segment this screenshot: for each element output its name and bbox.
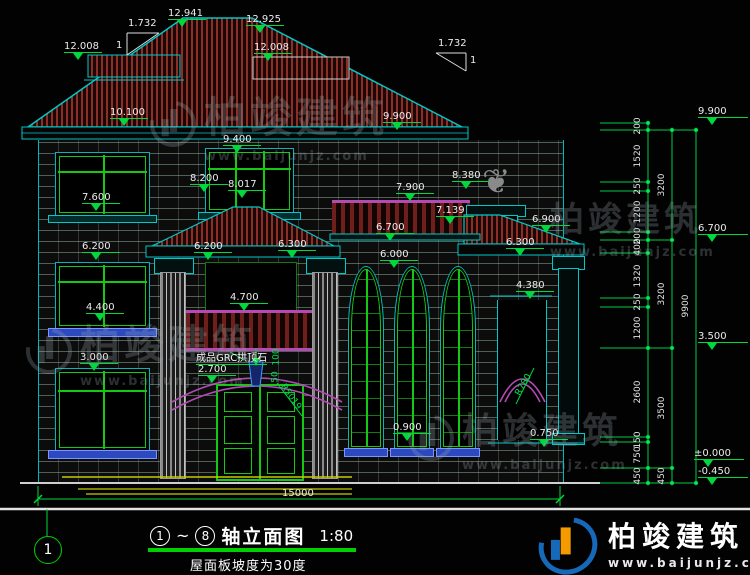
company-logo: 柏竣建筑 www.baijunjz.com bbox=[538, 518, 750, 574]
overall-width-dim: 15000 bbox=[282, 488, 314, 499]
dim-seg: 750 bbox=[633, 446, 643, 463]
elevation-label: 8.200 bbox=[190, 173, 232, 197]
elevation-label: 6.300 bbox=[278, 239, 320, 263]
title-scale: 1:80 bbox=[319, 527, 353, 545]
right-wing-lines bbox=[488, 296, 584, 443]
elevation-label: 6.200 bbox=[194, 241, 236, 265]
elevation-label: 6.700 bbox=[376, 222, 418, 246]
roof-slope-note: 屋面板坡度为30度 bbox=[190, 555, 307, 574]
elevation-label: 6.300 bbox=[506, 237, 548, 261]
keystone-height-dim: 50 bbox=[271, 371, 281, 382]
cad-elevation-sheet: ❦ 12.941 12.925 12.008 12.008 10.100 9.9… bbox=[0, 0, 750, 575]
dim-subtotal: 3200 bbox=[657, 283, 667, 306]
dim-subtotal: 3200 bbox=[657, 174, 667, 197]
level-flag: 9.900 bbox=[698, 106, 740, 130]
elevation-label: 12.008 bbox=[64, 41, 106, 65]
elevation-label: 10.100 bbox=[110, 107, 152, 131]
elevation-label: 9.900 bbox=[383, 111, 425, 135]
dim-seg: 250 bbox=[633, 293, 643, 310]
drawing-linework bbox=[0, 0, 750, 575]
elevation-label: 7.900 bbox=[396, 182, 438, 206]
elevation-label: 6.200 bbox=[82, 241, 124, 265]
elevation-label: 9.400 bbox=[223, 134, 265, 158]
elevation-label: 12.925 bbox=[246, 14, 288, 38]
elevation-label: 8.017 bbox=[228, 179, 270, 203]
elevation-label: 7.600 bbox=[82, 192, 124, 216]
elevation-label: 7.139 bbox=[436, 205, 478, 229]
elevation-label: 2.700 bbox=[198, 364, 240, 388]
elevation-label: 0.900 bbox=[393, 422, 435, 446]
axis-end-circle: 8 bbox=[195, 526, 215, 546]
dim-seg: 1320 bbox=[633, 265, 643, 288]
elevation-label: 12.941 bbox=[168, 8, 210, 32]
level-flag: 6.700 bbox=[698, 223, 740, 247]
company-name: 柏竣建筑 bbox=[608, 520, 744, 553]
dim-seg: 400 bbox=[633, 238, 643, 255]
dim-seg: 1520 bbox=[633, 145, 643, 168]
elevation-label: 4.400 bbox=[86, 302, 128, 326]
company-url: www.baijunjz.com bbox=[608, 556, 750, 570]
elevation-label: 8.380 bbox=[452, 170, 494, 194]
dim-seg: 250 bbox=[633, 177, 643, 194]
title-underline bbox=[148, 548, 356, 552]
dim-seg: 1200 bbox=[633, 317, 643, 340]
tilde: ~ bbox=[176, 526, 189, 545]
elevation-label: 12.008 bbox=[254, 42, 296, 66]
axis-bubble: 1 bbox=[34, 536, 62, 564]
slope-ratio-label: 1.732 bbox=[128, 18, 157, 29]
drawing-title: 1 ~ 8 轴立面图 1:80 bbox=[150, 522, 353, 549]
elevation-label: 6.900 bbox=[532, 214, 574, 238]
axis-start-circle: 1 bbox=[150, 526, 170, 546]
dim-seg: 1200 bbox=[633, 201, 643, 224]
slope-unit-label: 1 bbox=[116, 40, 122, 51]
slope-ratio-label: 1.732 bbox=[438, 38, 467, 49]
elevation-label: 6.000 bbox=[380, 249, 422, 273]
keystone-width-dim: 100 bbox=[272, 348, 282, 365]
level-flag: -0.450 bbox=[698, 466, 740, 490]
elevation-label: 4.380 bbox=[516, 280, 558, 304]
keystone-label: 成品GRC拱顶石 bbox=[196, 349, 267, 365]
elevation-label: 3.000 bbox=[80, 352, 122, 376]
dim-subtotal: 3500 bbox=[657, 397, 667, 420]
elevation-label: 0.750 bbox=[530, 428, 572, 452]
ground-lines bbox=[0, 483, 750, 509]
level-flag: 3.500 bbox=[698, 331, 740, 355]
dim-seg: 200 bbox=[633, 117, 643, 134]
dim-subtotal: 450 bbox=[657, 467, 667, 484]
overall-height-dim: 9900 bbox=[681, 295, 691, 318]
elevation-label: 4.700 bbox=[230, 292, 272, 316]
slope-unit-label: 1 bbox=[470, 55, 476, 66]
dim-seg: 450 bbox=[633, 467, 643, 484]
dim-seg: 2600 bbox=[633, 381, 643, 404]
title-text: 轴立面图 bbox=[221, 522, 305, 549]
